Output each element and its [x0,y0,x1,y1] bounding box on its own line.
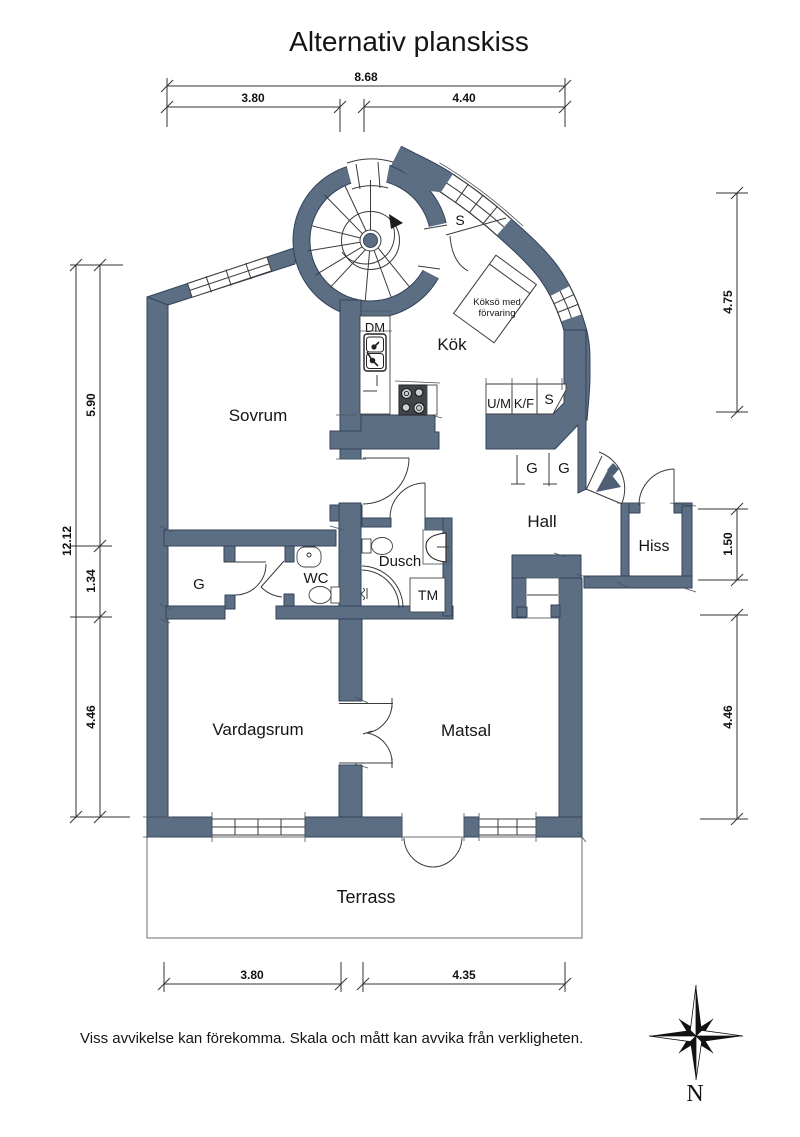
svg-text:WC: WC [304,570,329,587]
svg-text:S: S [455,212,464,228]
svg-text:Hiss: Hiss [638,538,669,555]
svg-text:Sovrum: Sovrum [229,406,288,425]
svg-text:Vardagsrum: Vardagsrum [212,720,303,739]
svg-text:Viss avvikelse kan förekomma.: Viss avvikelse kan förekomma. Skala och … [80,1030,583,1047]
svg-text:1.50: 1.50 [721,532,735,556]
svg-text:förvaring: förvaring [479,308,516,319]
svg-text:Alternativ planskiss: Alternativ planskiss [289,26,529,57]
svg-text:Terrass: Terrass [336,887,395,907]
svg-text:4.35: 4.35 [452,968,476,982]
svg-text:3.80: 3.80 [241,91,265,105]
svg-text:4.46: 4.46 [84,705,98,729]
svg-text:U/M: U/M [487,396,511,411]
svg-text:12.12: 12.12 [60,526,74,556]
svg-text:Hall: Hall [527,512,556,531]
svg-text:G: G [193,576,205,593]
svg-text:4.46: 4.46 [721,705,735,729]
svg-text:4.40: 4.40 [452,91,476,105]
svg-text:Köksö med: Köksö med [473,297,521,308]
svg-text:G: G [558,460,570,477]
svg-text:K/F: K/F [514,396,534,411]
svg-text:3.80: 3.80 [240,968,264,982]
svg-text:N: N [686,1081,703,1107]
svg-text:TM: TM [418,587,438,603]
svg-text:4.75: 4.75 [721,290,735,314]
svg-text:G: G [526,460,538,477]
svg-text:Dusch: Dusch [379,553,422,570]
svg-text:8.68: 8.68 [354,70,378,84]
svg-text:DM: DM [365,320,385,335]
svg-text:S: S [544,391,553,407]
svg-text:Kök: Kök [437,335,467,354]
svg-text:Matsal: Matsal [441,721,491,740]
svg-text:1.34: 1.34 [84,569,98,593]
svg-text:5.90: 5.90 [84,393,98,417]
